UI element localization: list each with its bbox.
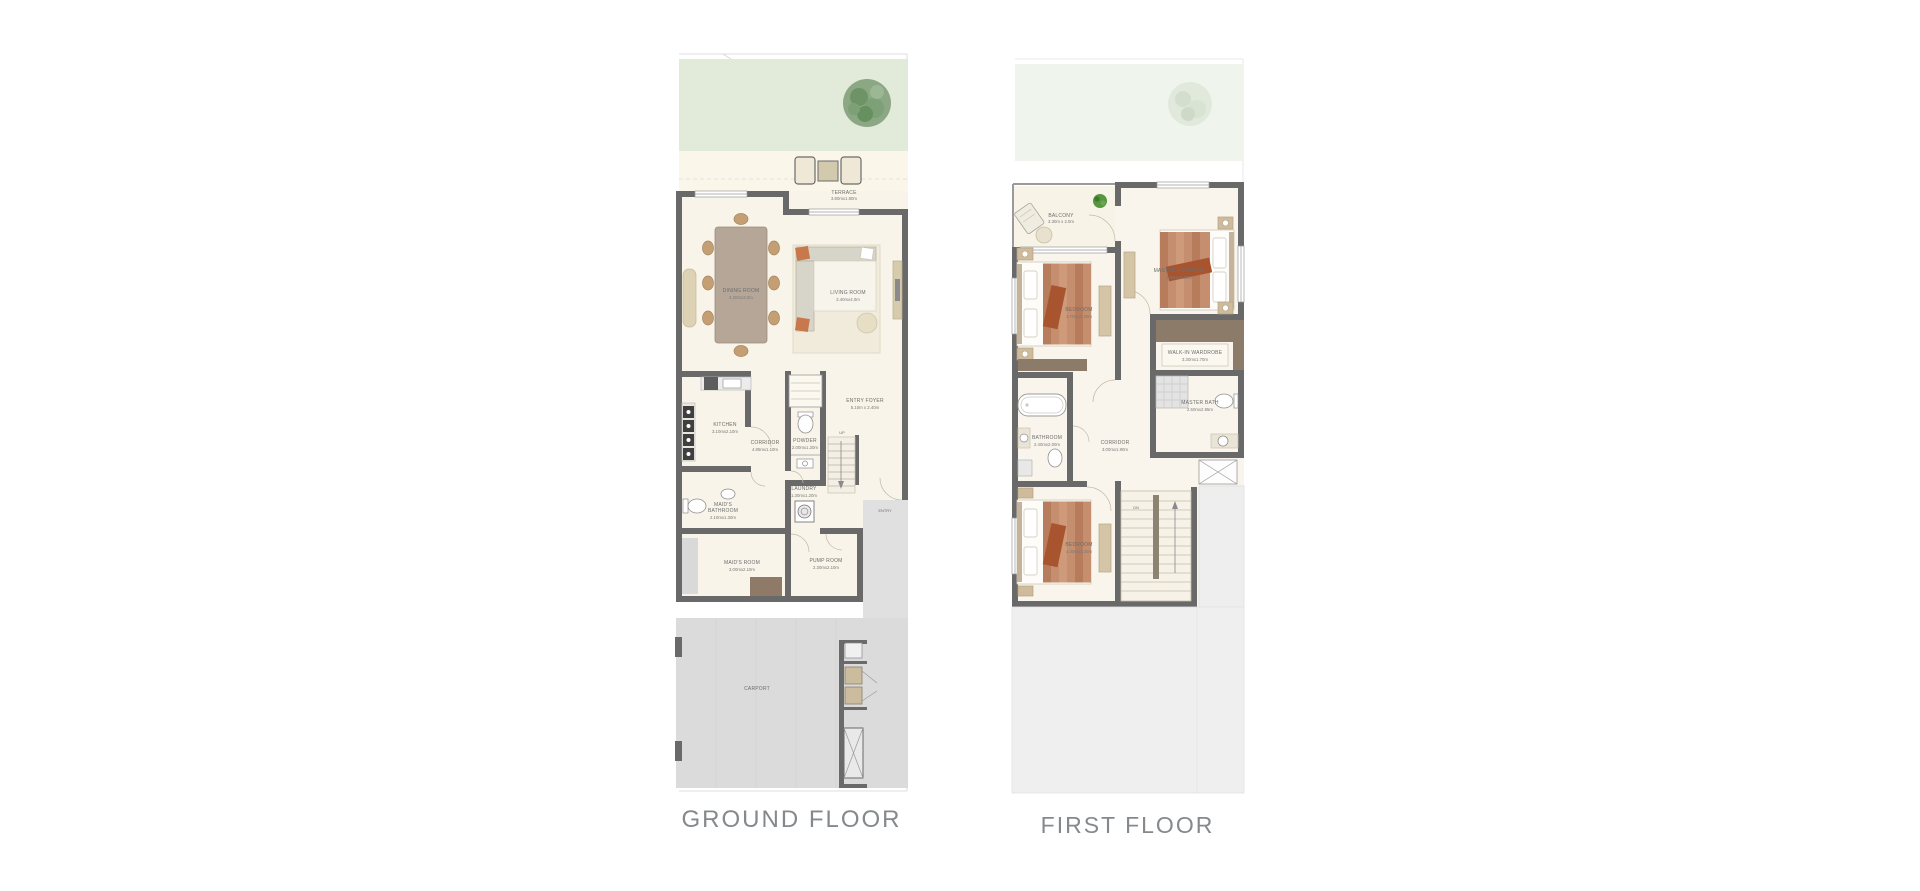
stairs-up-label: UP [839,430,845,435]
pump-room-label: PUMP ROOM [809,558,842,564]
tree-icon [843,79,891,127]
corridor-label: CORRIDOR [751,440,780,446]
balcony-table-icon [1036,227,1052,243]
master-bedroom-label: MASTER BEDROOM [1154,268,1205,274]
entry-foyer-dims: 5.10m x 2.40m [851,405,880,410]
dining-room-label: DINING ROOM [723,288,760,294]
bathroom-dims: 2.40mx2.00m [1034,442,1060,447]
laundry-dims: 1.30mx1.20m [791,493,817,498]
bedroom1-dims: 3.70mx3.30m [1066,314,1092,319]
maids-room-mat [682,538,698,594]
pump-room-dims: 2.30mx2.10m [813,565,839,570]
nightstand-lamp [1223,305,1229,311]
first-floor-caption: FIRST FLOOR [1007,812,1248,839]
hall-closet-icon [789,375,822,407]
walk-in-wardrobe-dims: 3.30mx1.70m [1182,357,1208,362]
shaft-box [1199,460,1237,484]
powder-sink-icon [797,459,813,468]
ground-floor-plan: TERRACE 3.80mx1.80m [671,51,912,794]
bedroom2-dims: 4.30mx3.30m [1066,549,1092,554]
powder-dims: 2.00mx1.20m [792,445,818,450]
dining-room-dims: 4.20mx3.0m [729,295,753,300]
toilet-icon [798,412,813,433]
stairs-icon [828,437,855,493]
corridor-label: CORRIDOR [1101,440,1130,446]
master-bath-label: MASTER BATH [1181,400,1219,406]
maids-bathroom-label2: BATHROOM [708,508,738,514]
carport-area [675,618,908,788]
entry-label: ENTRY [878,508,892,513]
walk-in-wardrobe-label: WALK-IN WARDROBE [1168,350,1223,356]
maids-sink-icon [721,489,735,499]
toilet-icon [1048,449,1062,467]
entry-foyer-label: ENTRY FOYER [846,398,884,404]
bedroom2-label: BEDROOM [1065,542,1092,548]
powder-label: POWDER [793,438,817,444]
tv-console-icon [893,261,902,319]
maids-bathroom-dims: 2.10mx1.30m [710,515,736,520]
maids-room-wardrobe [750,577,782,596]
nightstand-lamp [1223,220,1229,226]
vanity-sink-icon [1211,434,1238,448]
bedroom1-label: BEDROOM [1065,307,1092,313]
tree-icon-faint [1168,82,1212,126]
bed-icon-bedroom1 [1017,262,1091,346]
maids-room-dims: 3.00mx2.10m [729,567,755,572]
terrace-dims: 3.80mx1.80m [831,196,857,201]
bathroom-sink-icon [1018,428,1030,448]
floorplan-page: TERRACE 3.80mx1.80m [0,0,1920,891]
dresser-icon [1099,286,1111,336]
living-room-label: LIVING ROOM [830,290,866,296]
balcony-dims: 3.30m x 2.0m [1048,219,1074,224]
corridor-dims: 4.85mx1.10m [752,447,778,452]
bathtub-icon [1018,394,1066,416]
laundry-label: LAUNDRY [791,486,817,492]
kitchen-dims: 3.10mx2.10m [712,429,738,434]
ground-floor-drawing: TERRACE 3.80mx1.80m [671,51,912,794]
dresser-icon [1099,524,1111,572]
entry-walkway [863,500,908,618]
maids-room-label: MAID'S ROOM [724,560,760,566]
first-floor-drawing: DN BALCONY 3.30m x 2.0m BEDROOM 3.70mx3.… [1007,56,1248,800]
bedroom1-wardrobe [1018,359,1087,371]
plant-icon [1093,194,1107,208]
maids-toilet-icon [683,499,706,513]
stairs-dn-label: DN [1133,505,1139,510]
master-bedroom-dims: 3.90mx3.85m [1166,275,1192,280]
carport-label: CARPORT [744,686,770,692]
outdoor-sofa-icon [795,157,861,184]
living-room-dims: 3.40mx4.0m [836,297,860,302]
nightstand-lamp [1022,251,1028,257]
kitchen-label: KITCHEN [713,422,737,428]
nightstand-lamp [1022,351,1028,357]
dresser-icon [1124,252,1135,298]
nightstand-icon [1018,586,1033,596]
roof-strip [1199,486,1244,607]
washer-icon [795,501,814,522]
shower-tray-icon [1018,460,1032,476]
carport-roof-area [1012,607,1244,793]
stairs-icon [1121,491,1191,601]
ground-floor-caption: GROUND FLOOR [671,806,912,834]
nightstand-icon [1018,488,1033,498]
master-bath-dims: 2.50mx2.85m [1187,407,1213,412]
bathroom-label: BATHROOM [1032,435,1062,441]
corridor-dims: 3.00mx1.90m [1102,447,1128,452]
first-floor-plan: DN BALCONY 3.30m x 2.0m BEDROOM 3.70mx3.… [1007,56,1248,800]
